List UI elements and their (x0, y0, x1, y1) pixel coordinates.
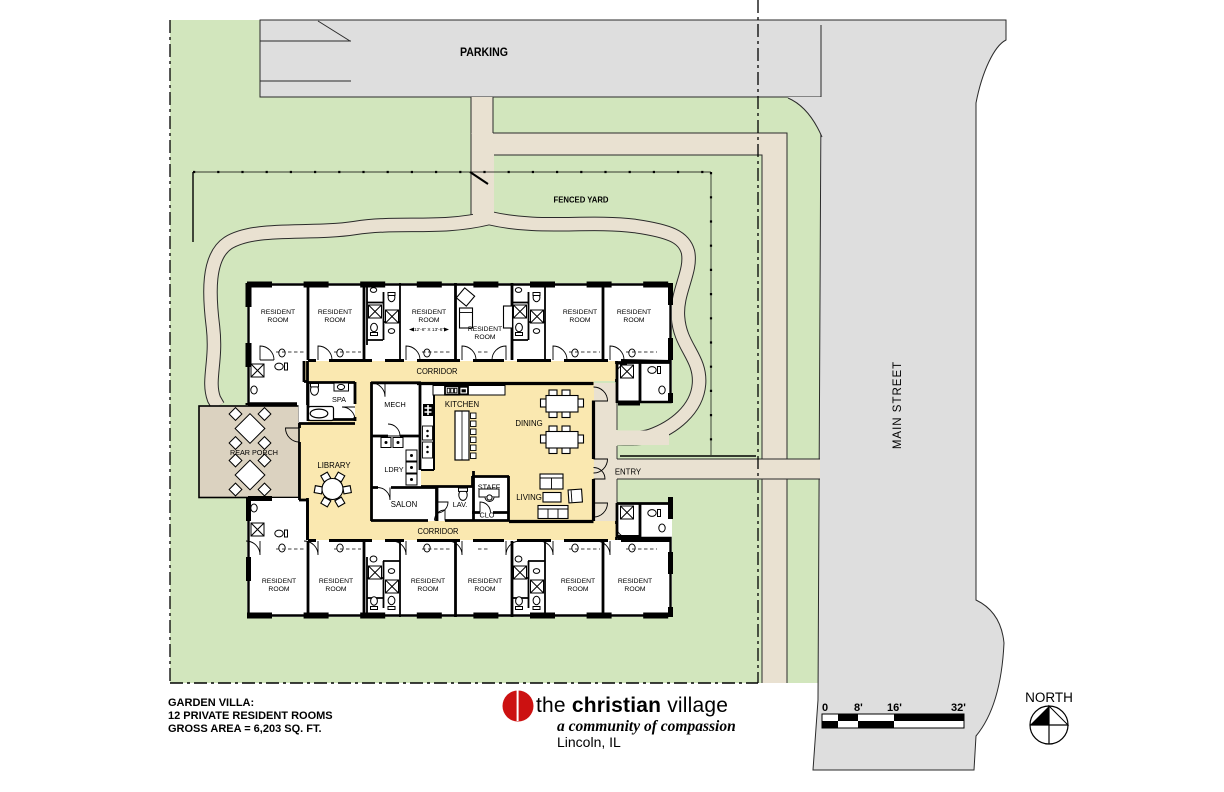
svg-text:MECH: MECH (384, 400, 406, 409)
svg-text:ENTRY: ENTRY (615, 468, 642, 477)
svg-text:ROOM: ROOM (418, 317, 439, 324)
svg-text:ROOM: ROOM (474, 586, 495, 593)
svg-text:SPA: SPA (332, 395, 346, 404)
svg-text:GARDEN VILLA:: GARDEN VILLA: (168, 697, 254, 709)
svg-text:ROOM: ROOM (567, 586, 588, 593)
svg-text:Lincoln, IL: Lincoln, IL (557, 734, 621, 750)
svg-text:ROOM: ROOM (417, 586, 438, 593)
svg-text:ROOM: ROOM (267, 317, 288, 324)
svg-text:RESIDENT: RESIDENT (468, 326, 502, 333)
svg-text:a community of compassion: a community of compassion (557, 718, 736, 735)
svg-text:12'-6" X 13'-6": 12'-6" X 13'-6" (414, 327, 445, 333)
svg-text:LAV.: LAV. (453, 500, 468, 509)
svg-text:GROSS AREA = 6,203 SQ. FT.: GROSS AREA = 6,203 SQ. FT. (168, 723, 322, 735)
svg-text:RESIDENT: RESIDENT (412, 309, 446, 316)
svg-text:ROOM: ROOM (474, 334, 495, 341)
svg-text:ROOM: ROOM (623, 317, 644, 324)
svg-text:RESIDENT: RESIDENT (617, 309, 651, 316)
svg-text:12 PRIVATE RESIDENT ROOMS: 12 PRIVATE RESIDENT ROOMS (168, 710, 333, 722)
svg-text:ROOM: ROOM (325, 586, 346, 593)
svg-text:NORTH: NORTH (1025, 690, 1073, 705)
svg-text:FENCED YARD: FENCED YARD (554, 195, 609, 205)
svg-text:REAR PORCH: REAR PORCH (230, 448, 278, 457)
svg-text:DINING: DINING (515, 419, 542, 428)
svg-text:RESIDENT: RESIDENT (319, 578, 353, 585)
svg-text:SALON: SALON (391, 500, 417, 509)
svg-text:CORRIDOR: CORRIDOR (418, 526, 459, 536)
svg-text:LIBRARY: LIBRARY (317, 461, 351, 470)
svg-text:LIVING: LIVING (516, 493, 542, 502)
svg-text:RESIDENT: RESIDENT (262, 578, 296, 585)
svg-text:STAFF: STAFF (478, 483, 501, 492)
svg-text:RESIDENT: RESIDENT (563, 309, 597, 316)
svg-text:ROOM: ROOM (624, 586, 645, 593)
svg-text:RESIDENT: RESIDENT (261, 309, 295, 316)
svg-text:16': 16' (887, 702, 902, 714)
svg-text:ROOM: ROOM (268, 586, 289, 593)
svg-text:RESIDENT: RESIDENT (411, 578, 445, 585)
svg-text:RESIDENT: RESIDENT (618, 578, 652, 585)
svg-text:32': 32' (951, 702, 966, 714)
svg-text:CLO: CLO (479, 511, 494, 520)
svg-text:CORRIDOR: CORRIDOR (417, 366, 458, 376)
svg-text:LDRY: LDRY (384, 465, 403, 474)
svg-text:ROOM: ROOM (324, 317, 345, 324)
svg-text:MAIN STREET: MAIN STREET (892, 361, 904, 449)
svg-text:RESIDENT: RESIDENT (561, 578, 595, 585)
svg-text:the christian village: the christian village (536, 694, 728, 717)
svg-text:8': 8' (854, 702, 863, 714)
svg-text:RESIDENT: RESIDENT (468, 578, 502, 585)
svg-text:0: 0 (822, 702, 828, 714)
svg-text:RESIDENT: RESIDENT (318, 309, 352, 316)
svg-text:KITCHEN: KITCHEN (445, 400, 479, 409)
svg-text:ROOM: ROOM (569, 317, 590, 324)
svg-text:PARKING: PARKING (460, 47, 508, 59)
